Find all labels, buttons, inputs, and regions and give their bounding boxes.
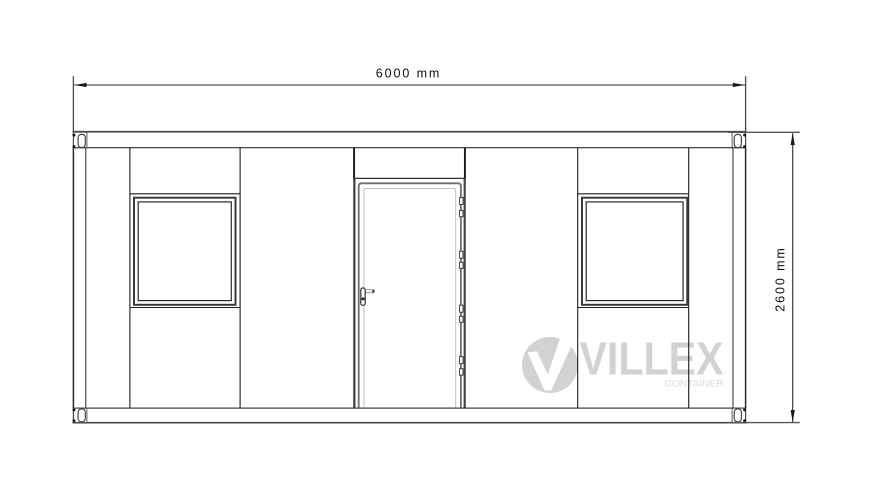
svg-text:6000 mm: 6000 mm	[376, 66, 441, 80]
svg-text:CONTAINER: CONTAINER	[665, 377, 724, 388]
svg-text:2600 mm: 2600 mm	[773, 246, 787, 311]
